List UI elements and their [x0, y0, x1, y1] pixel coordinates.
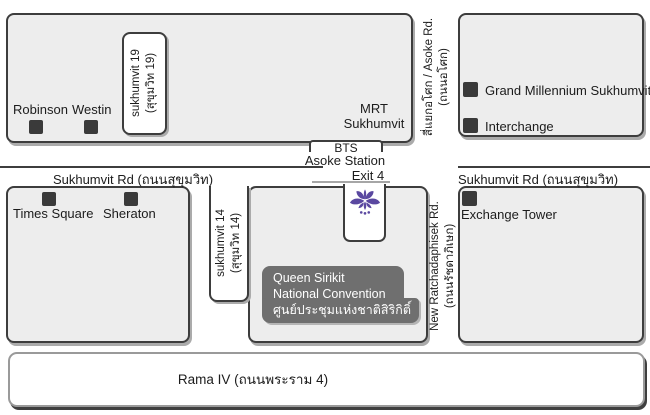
asoke-station-label: Asoke Station: [285, 153, 405, 168]
mrt-station-label: MRT Sukhumvit: [337, 101, 411, 131]
road-label-line: New Ratchadaphisek Rd.: [428, 156, 443, 376]
road-label-sukhumvit-14: sukhumvit 14 (สุขุมวิท 14): [214, 133, 244, 353]
venue-name: Queen Sirikit National Convention ศูนย์ป…: [273, 270, 411, 318]
building-marker-interchange: [463, 118, 478, 133]
landmark-label-robinson: Robinson: [13, 102, 68, 117]
road-divider-right: [458, 166, 650, 168]
exit-4-label: Exit 4: [340, 168, 396, 183]
road-label-sukhumvit-19: sukhumvit 19 (สุขุมวิท 19): [129, 0, 159, 193]
landmark-label-sheraton: Sheraton: [103, 206, 156, 221]
road-label-line: (สุขุมวิท 19): [144, 0, 159, 193]
building-marker-times-square: [42, 192, 56, 206]
road-label-line: sukhumvit 14: [214, 133, 229, 353]
road-label-sukhumvit-east: Sukhumvit Rd (ถนนสุขุมวิท): [433, 169, 643, 190]
landmark-label-westin: Westin: [72, 102, 112, 117]
landmark-label-grand-millennium: Grand Millennium Sukhumvit: [485, 83, 650, 98]
building-marker-westin: [84, 120, 98, 134]
road-divider-left: [0, 166, 323, 168]
mrt-line1: MRT: [337, 101, 411, 116]
road-label-ratchadaphisek: New Ratchadaphisek Rd. (ถนนรัชดาภิเษก): [428, 156, 458, 376]
landmark-label-interchange: Interchange: [485, 119, 554, 134]
venue-flower-icon: [349, 188, 381, 217]
landmark-label-exchange-tower: Exchange Tower: [461, 207, 557, 222]
road-label-line: (ถนนรัชดาภิเษก): [443, 156, 458, 376]
road-label-line: (สุขุมวิท 14): [229, 133, 244, 353]
convention-center-map: sukhumvit 19 (สุขุมวิท 19) sukhumvit 14 …: [0, 0, 650, 415]
road-label-rama-4: Rama IV (ถนนพระราม 4): [143, 368, 363, 390]
building-marker-sheraton: [124, 192, 138, 206]
road-label-line: sukhumvit 19: [129, 0, 144, 193]
building-marker-grand-millennium: [463, 82, 478, 97]
building-marker-robinson: [29, 120, 43, 134]
venue-name-line2: National Convention: [273, 286, 411, 302]
venue-name-line1: Queen Sirikit: [273, 270, 411, 286]
building-marker-exchange-tower: [462, 191, 477, 206]
landmark-label-times-square: Times Square: [13, 206, 93, 221]
mrt-line2: Sukhumvit: [337, 116, 411, 131]
venue-name-line3: ศูนย์ประชุมแห่งชาติสิริกิติ์: [273, 302, 411, 318]
